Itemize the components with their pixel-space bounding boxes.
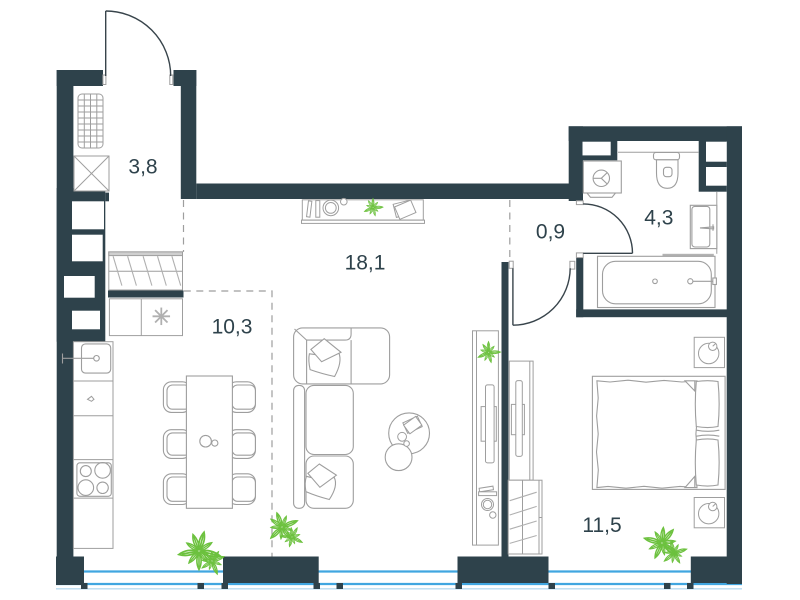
- svg-text:0,9: 0,9: [536, 221, 565, 244]
- svg-text:10,3: 10,3: [212, 316, 253, 339]
- svg-text:3,8: 3,8: [128, 156, 157, 179]
- svg-text:18,1: 18,1: [345, 252, 386, 275]
- svg-text:4,3: 4,3: [644, 206, 673, 229]
- svg-text:11,5: 11,5: [582, 514, 621, 537]
